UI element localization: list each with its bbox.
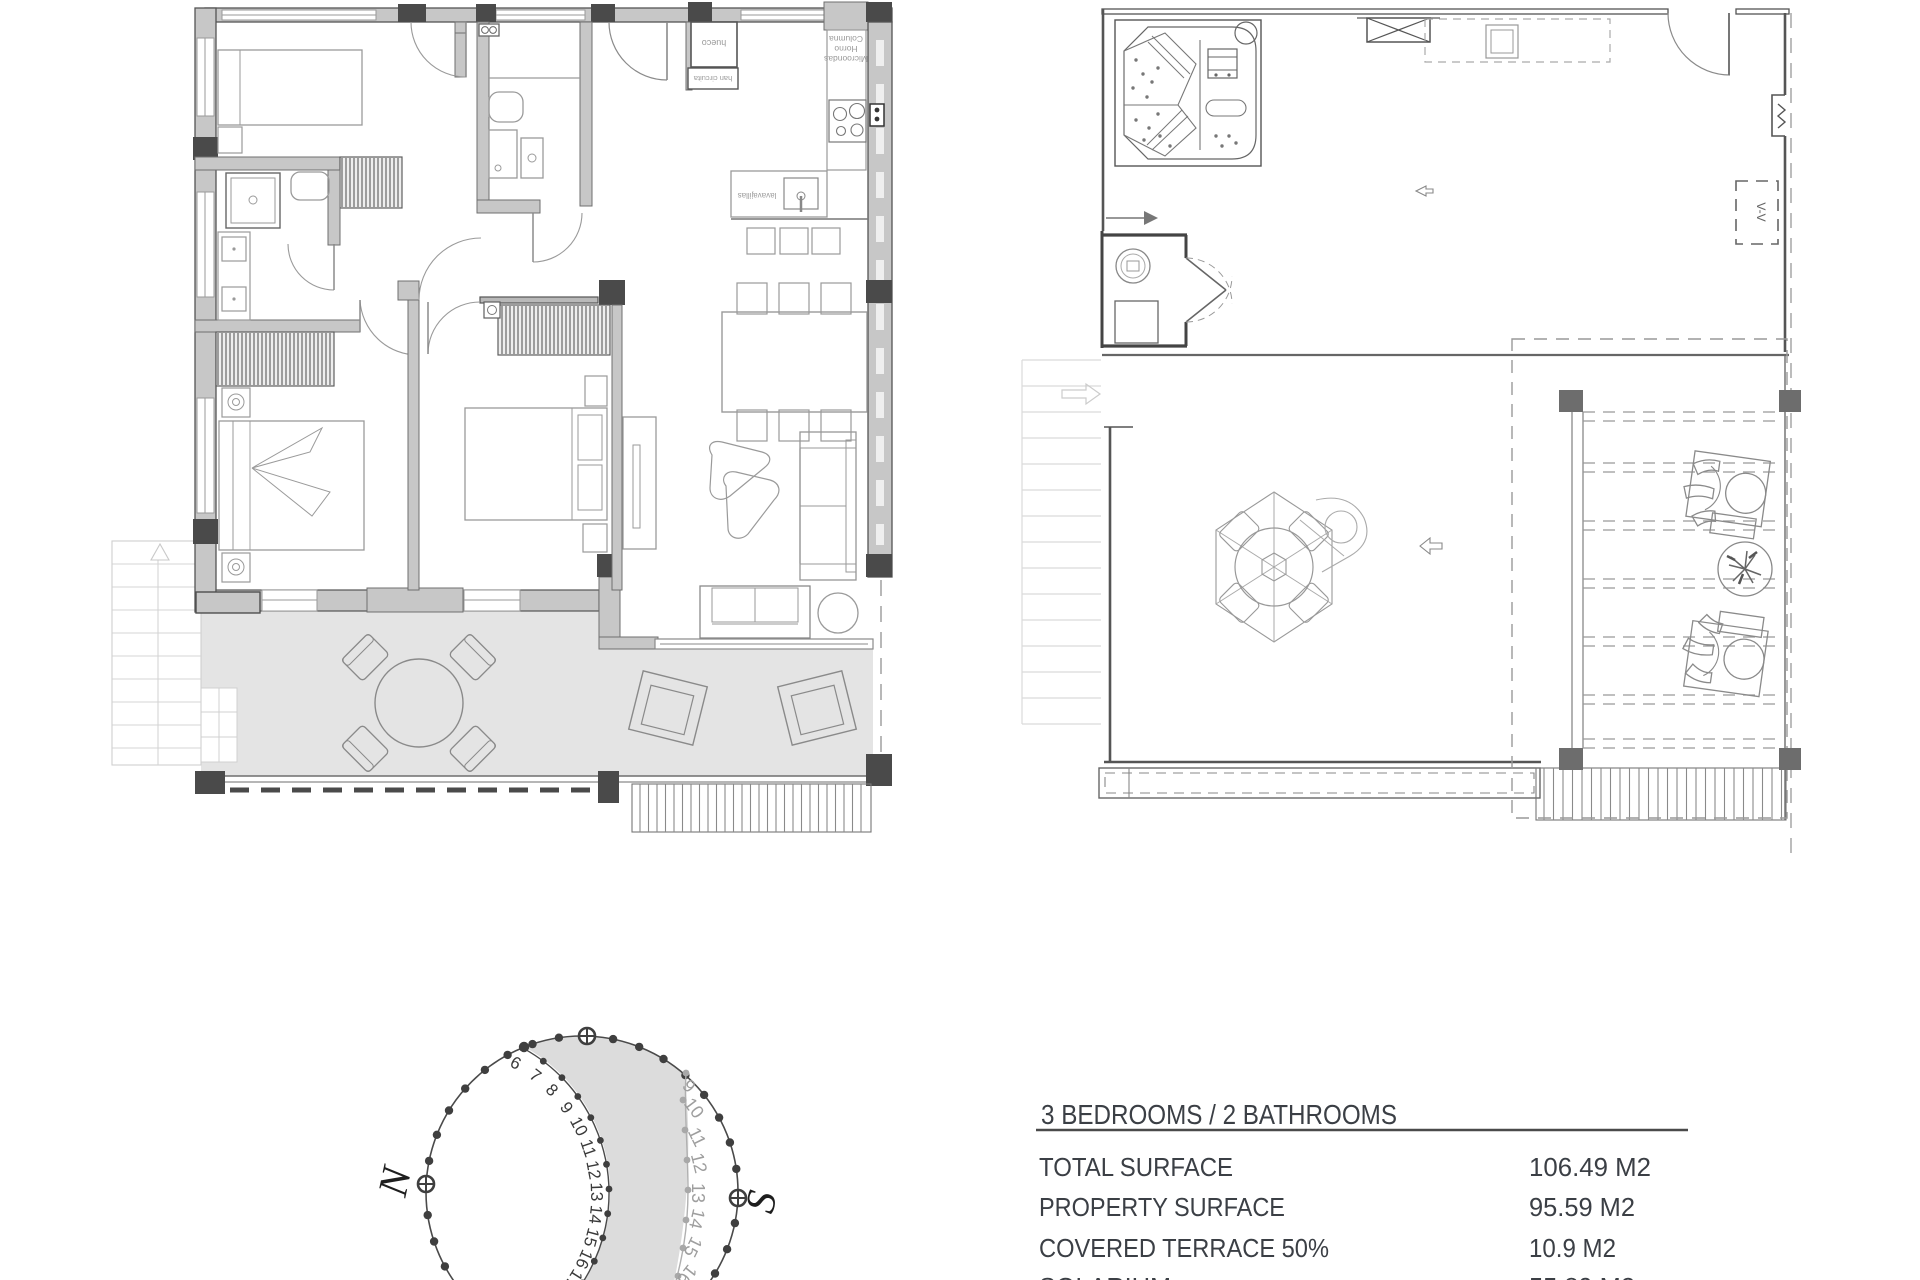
svg-text:106.49 M2: 106.49 M2: [1529, 1152, 1651, 1182]
svg-text:COVERED TERRACE 50%: COVERED TERRACE 50%: [1039, 1233, 1329, 1263]
svg-text:95.59 M2: 95.59 M2: [1529, 1192, 1635, 1222]
svg-text:55.89 M2: 55.89 M2: [1529, 1272, 1635, 1280]
svg-text:lavavajillas: lavavajillas: [738, 191, 777, 200]
svg-text:10.9 M2: 10.9 M2: [1529, 1233, 1616, 1263]
svg-text:14: 14: [585, 1204, 606, 1225]
svg-text:3 BEDROOMS / 2 BATHROOMS: 3 BEDROOMS / 2 BATHROOMS: [1041, 1099, 1397, 1130]
svg-text:han circuita: han circuita: [693, 74, 732, 83]
svg-text:12: 12: [582, 1159, 604, 1181]
svg-text:13: 13: [688, 1183, 708, 1203]
svg-text:Microondas: Microondas: [824, 54, 868, 64]
svg-text:V-V: V-V: [1754, 202, 1768, 221]
svg-text:TOTAL SURFACE: TOTAL SURFACE: [1039, 1152, 1233, 1182]
svg-text:PROPERTY SURFACE: PROPERTY SURFACE: [1039, 1192, 1285, 1222]
svg-text:Horno: Horno: [834, 44, 857, 54]
svg-text:hueco: hueco: [702, 38, 727, 48]
svg-text:SOLARIUM: SOLARIUM: [1039, 1272, 1171, 1280]
svg-text:Columna: Columna: [829, 34, 863, 44]
svg-text:13: 13: [587, 1182, 607, 1202]
